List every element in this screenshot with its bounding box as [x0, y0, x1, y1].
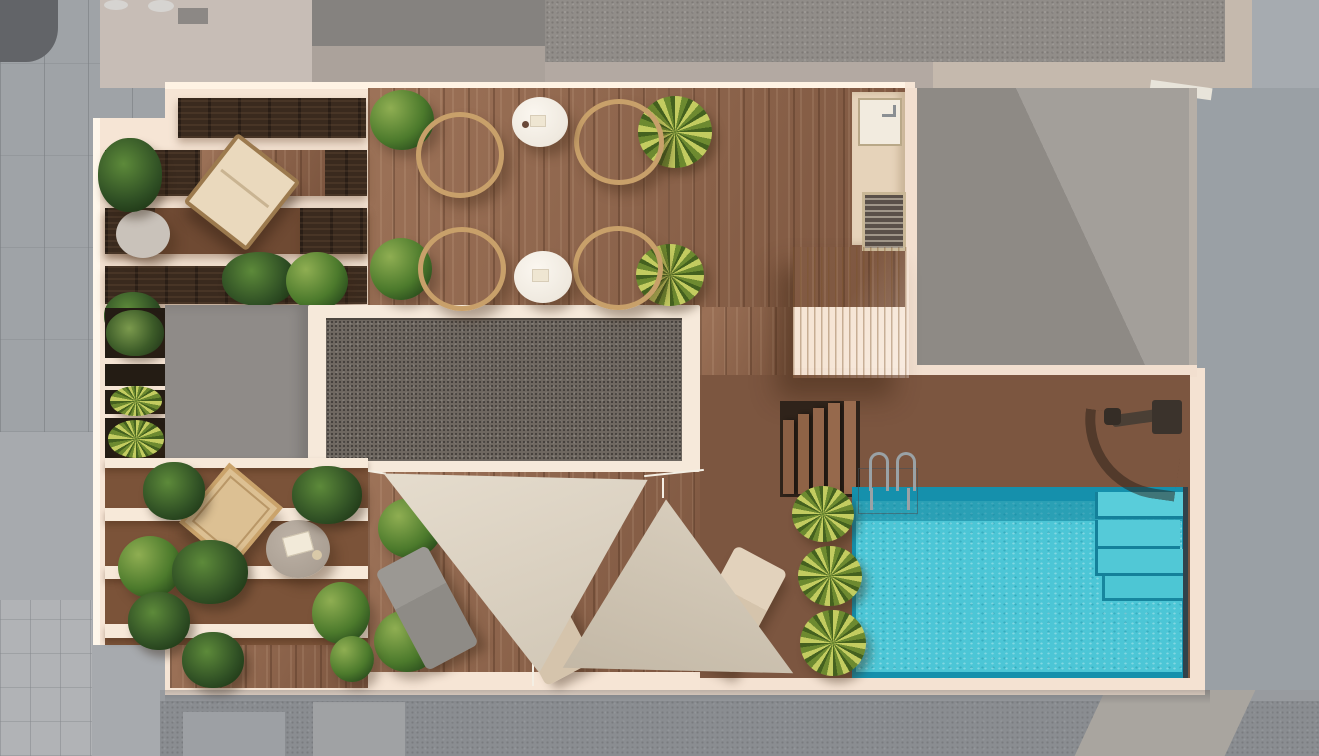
roof-vent — [104, 0, 128, 10]
cup — [312, 550, 322, 560]
pool-ladder — [869, 452, 889, 491]
plant-leafy — [128, 592, 190, 650]
magazine — [282, 531, 314, 558]
plant-bush — [286, 252, 348, 310]
roof-margin-tan — [1225, 0, 1255, 88]
cushion-fold — [220, 169, 269, 208]
pool-edge-line — [1183, 487, 1188, 678]
stair-tread — [798, 414, 809, 494]
round-wicker-chair — [416, 112, 504, 198]
coffee-cup — [522, 121, 529, 128]
stair-tread — [783, 420, 794, 494]
faucet — [893, 105, 896, 117]
round-wicker-chair — [573, 226, 663, 310]
table-tray — [532, 269, 549, 282]
wall-glow-left — [93, 118, 100, 645]
round-wicker-chair — [418, 227, 506, 311]
neighbor-roof-textured — [545, 0, 1225, 62]
swimming-pool — [852, 487, 1188, 678]
pool-step — [1095, 549, 1186, 576]
grill-vent — [862, 192, 906, 251]
round-coffee-table — [266, 520, 330, 578]
pavement-block — [313, 702, 405, 756]
table-tray — [530, 115, 546, 127]
plant-leafy — [172, 540, 248, 604]
pool-step — [1102, 576, 1183, 601]
plant-leafy — [182, 632, 244, 688]
timber-pergola-deck — [793, 247, 909, 378]
roof-box — [178, 8, 208, 24]
yucca-plant — [792, 486, 854, 542]
light-tile-paving — [0, 600, 92, 756]
round-wicker-chair — [574, 99, 664, 185]
white-side-table — [514, 251, 572, 303]
neighbor-ground-right — [1195, 88, 1319, 756]
shower-head — [1104, 408, 1121, 425]
louvre-band — [178, 98, 366, 138]
stair-tread — [844, 401, 856, 494]
sink — [858, 98, 902, 146]
outdoor-shower — [1152, 400, 1182, 434]
white-side-table — [512, 97, 568, 147]
plant-bush — [330, 636, 374, 682]
deck-connector — [700, 307, 793, 375]
louvre-band-end — [300, 208, 367, 254]
flat-grey-roof-block — [165, 305, 310, 468]
adjacent-grey-roof — [917, 88, 1195, 365]
planter-flowers — [106, 310, 164, 356]
plant-leafy — [292, 466, 362, 524]
pavement-patch — [183, 712, 285, 756]
plant-leafy — [98, 138, 162, 212]
ladder-rail — [870, 488, 873, 510]
small-round-table — [116, 210, 170, 258]
ladder-rail — [907, 488, 910, 510]
yucca-plant — [798, 546, 862, 606]
yucca-plant — [110, 386, 162, 416]
yucca-plant — [108, 420, 164, 458]
roof-edge-tan — [1189, 88, 1197, 365]
sail-guy-line — [662, 478, 664, 498]
neighbor-roof-dark — [312, 0, 545, 46]
rooftop-terrace-render — [0, 0, 1319, 756]
gravel-skylight-roof — [326, 318, 682, 461]
roof-vent — [148, 0, 174, 12]
pool-ladder — [896, 452, 916, 491]
stair-tread — [828, 403, 840, 494]
yucca-plant — [800, 610, 866, 676]
terrace-cast-shadow — [165, 690, 1210, 704]
plant-bush — [312, 582, 370, 644]
planter-box — [105, 364, 167, 386]
pool-step — [1095, 520, 1180, 549]
stair-tread — [813, 408, 824, 494]
plant-leafy — [143, 462, 205, 520]
plant-leafy — [222, 252, 296, 306]
